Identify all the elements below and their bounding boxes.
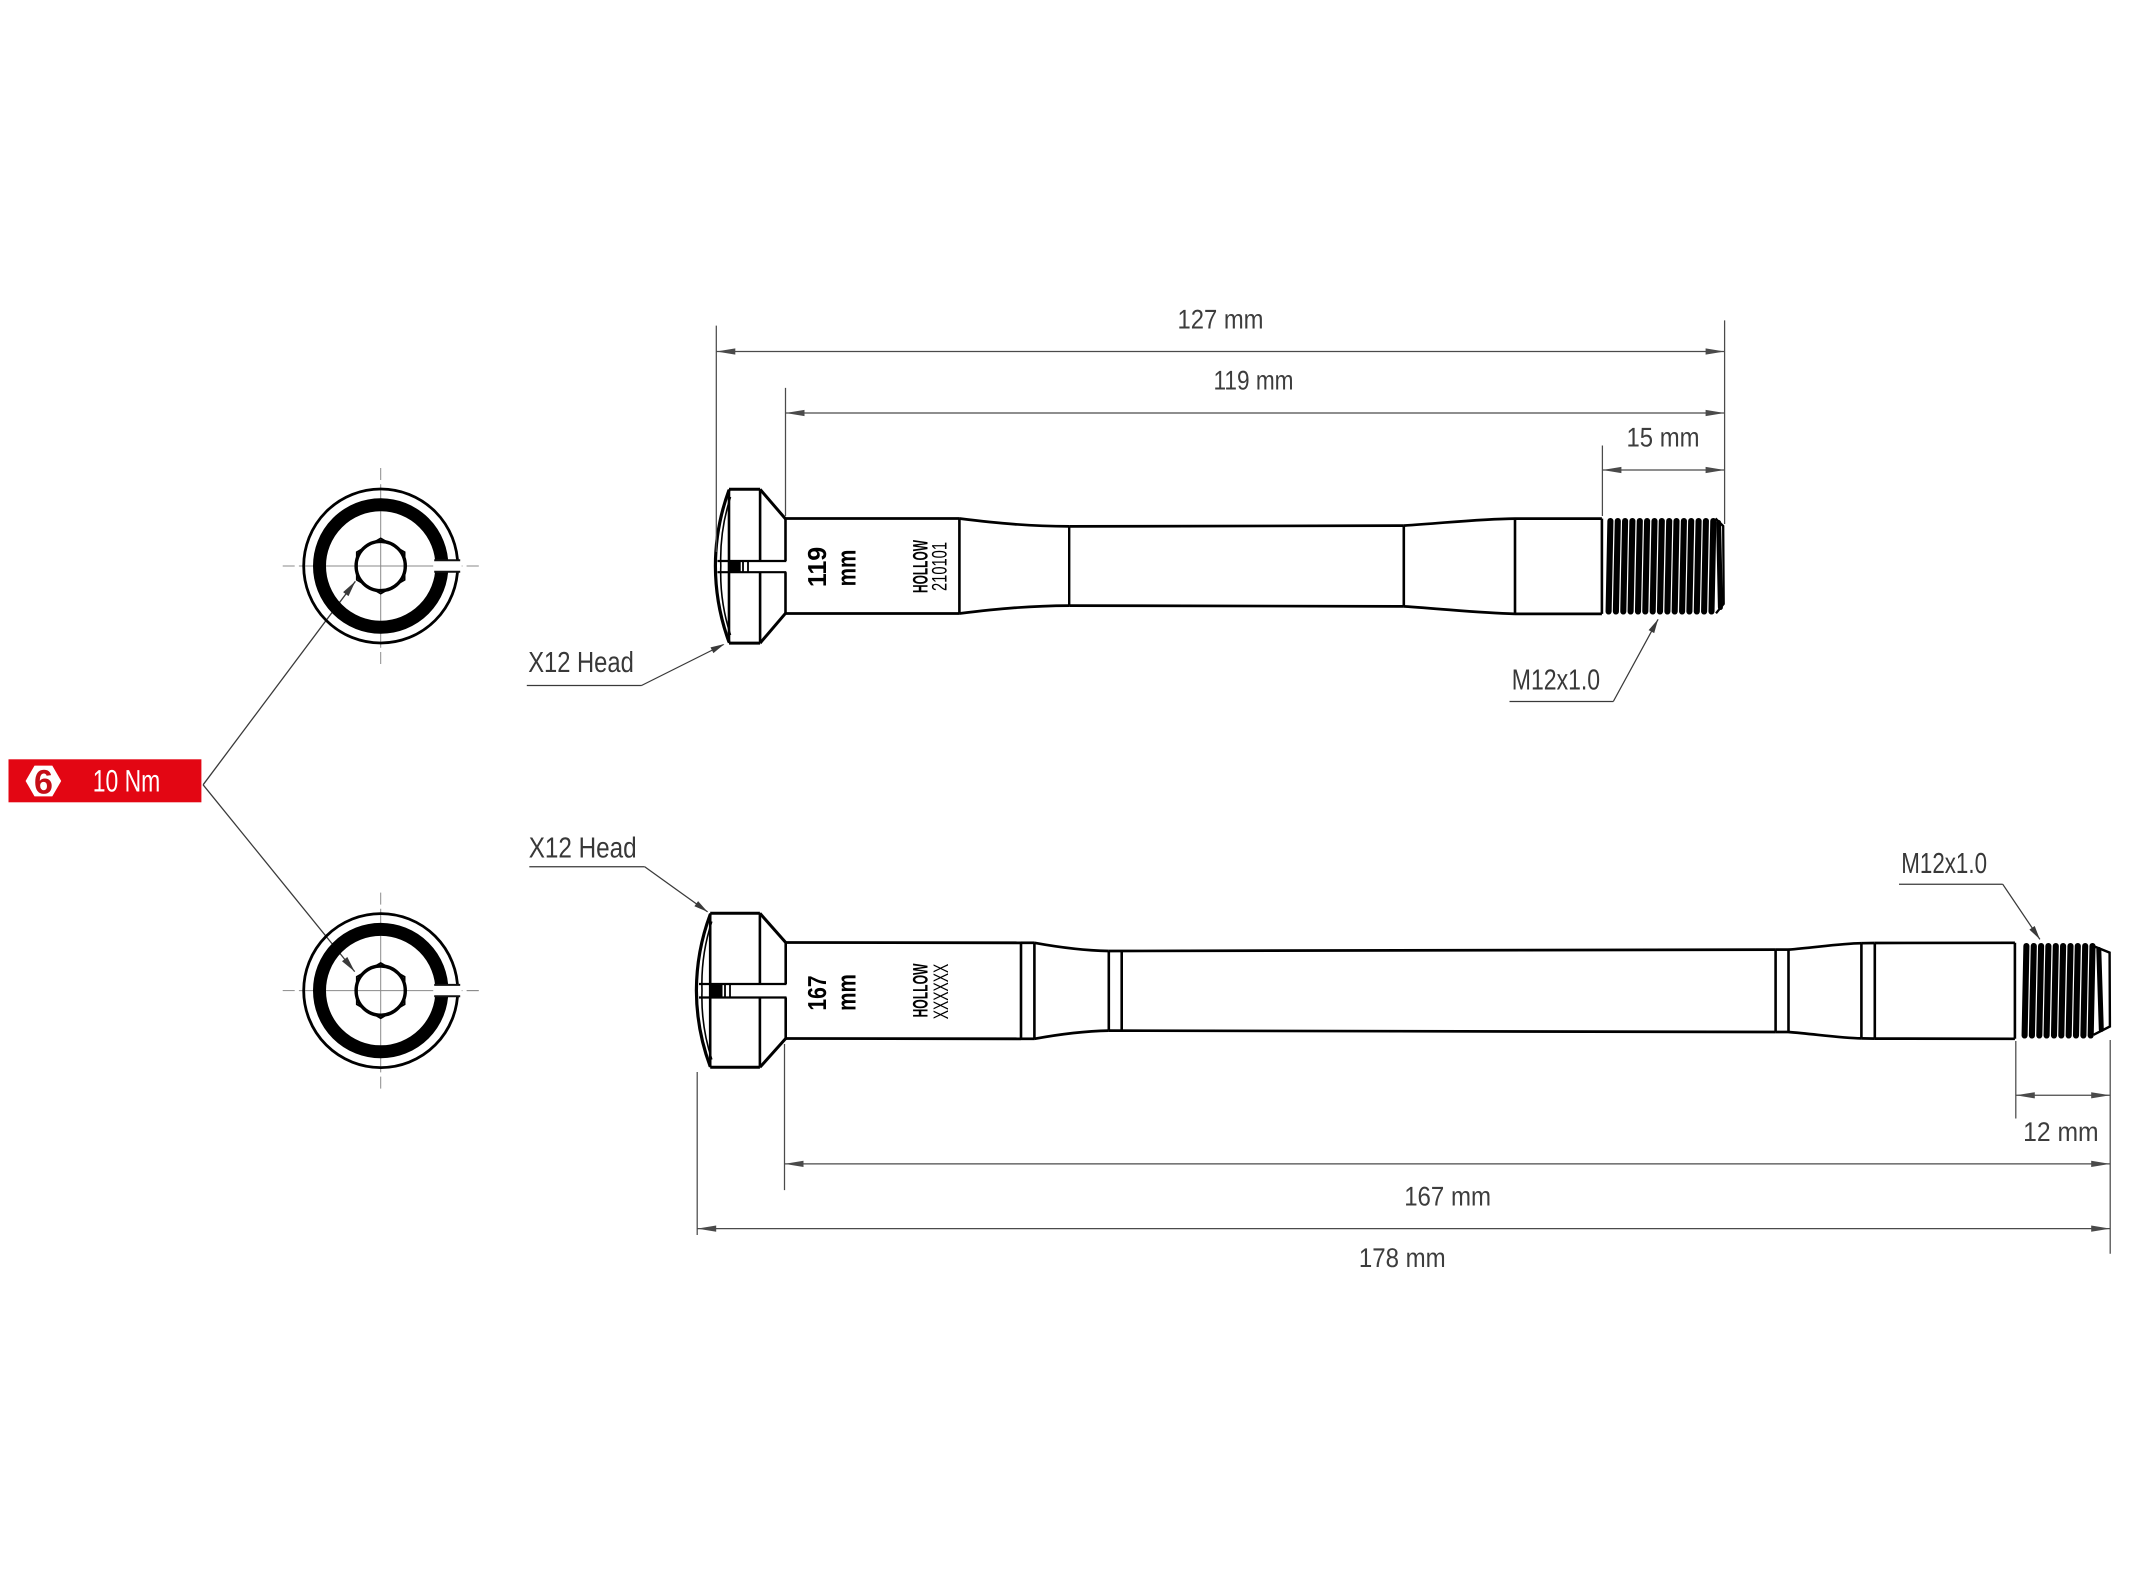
svg-text:127 mm: 127 mm — [1178, 304, 1264, 334]
svg-text:X12 Head: X12 Head — [528, 647, 634, 679]
svg-text:M12x1.0: M12x1.0 — [1901, 848, 1987, 880]
svg-text:178 mm: 178 mm — [1359, 1243, 1446, 1273]
svg-text:12 mm: 12 mm — [2023, 1117, 2099, 1147]
svg-text:119 mm: 119 mm — [1214, 365, 1294, 395]
svg-text:15 mm: 15 mm — [1627, 422, 1700, 452]
svg-text:119: 119 — [802, 547, 832, 587]
svg-text:XXXXXX: XXXXXX — [930, 964, 953, 1020]
svg-text:167 mm: 167 mm — [1404, 1182, 1491, 1212]
svg-text:M12x1.0: M12x1.0 — [1512, 665, 1600, 697]
svg-text:X12 Head: X12 Head — [529, 833, 637, 865]
svg-text:mm: mm — [832, 974, 862, 1011]
svg-text:210101: 210101 — [929, 542, 952, 591]
svg-text:10 Nm: 10 Nm — [93, 763, 161, 798]
svg-text:167: 167 — [802, 975, 832, 1010]
svg-text:6: 6 — [34, 763, 53, 801]
svg-text:mm: mm — [832, 550, 862, 587]
